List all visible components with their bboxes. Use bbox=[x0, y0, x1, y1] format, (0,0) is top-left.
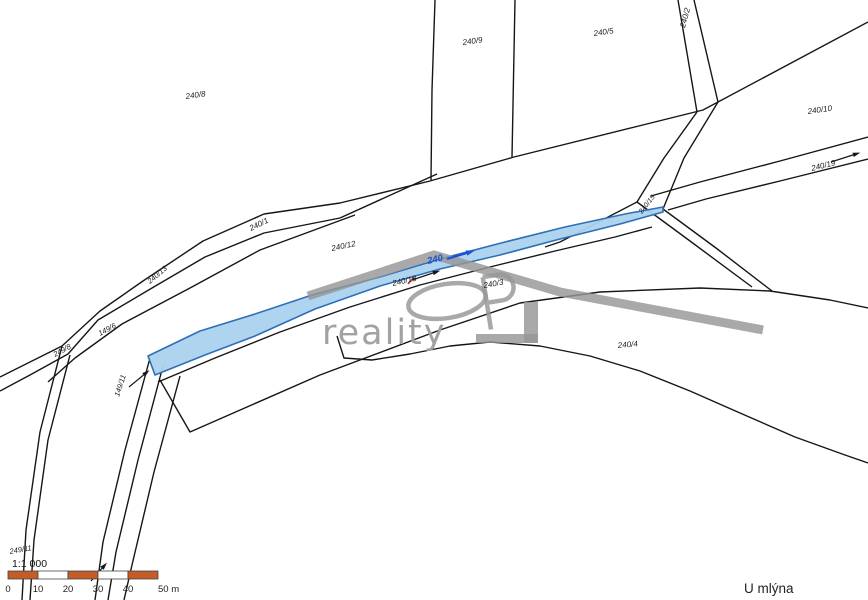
map-background bbox=[0, 0, 868, 600]
parcel-label: 240/4 bbox=[616, 339, 638, 350]
map-area-label: U mlýna bbox=[744, 581, 794, 596]
watermark-text: reality bbox=[322, 313, 447, 353]
scale-bar-segment bbox=[68, 571, 98, 579]
scale-tick-label: 10 bbox=[33, 584, 44, 595]
scale-tick-label: 30 bbox=[93, 584, 104, 595]
watermark-bracket-icon bbox=[476, 334, 538, 343]
scale-tick-label: 40 bbox=[123, 584, 134, 595]
scale-bar-segment bbox=[38, 571, 68, 579]
scale-tick-label: 0 bbox=[5, 584, 10, 595]
scale-bar-segment bbox=[98, 571, 128, 579]
map-canvas: reality240/8240/9240/5240/2240/10240/192… bbox=[0, 0, 868, 600]
scale-tick-label: 50 m bbox=[158, 584, 179, 595]
scale-bar-segment bbox=[128, 571, 158, 579]
scale-bar-segment bbox=[8, 571, 38, 579]
cadastral-map: reality240/8240/9240/5240/2240/10240/192… bbox=[0, 0, 868, 600]
scale-ratio-label: 1:1 000 bbox=[12, 558, 47, 570]
scale-tick-label: 20 bbox=[63, 584, 74, 595]
